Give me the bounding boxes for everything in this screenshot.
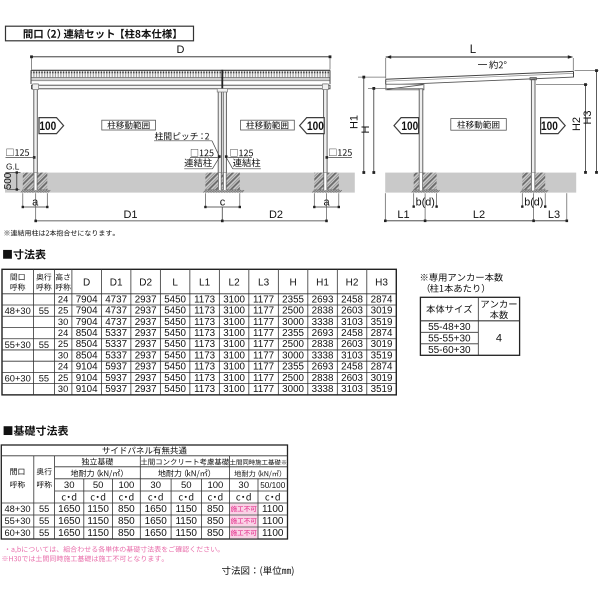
svg-text:2937: 2937 xyxy=(135,306,157,317)
svg-text:H: H xyxy=(360,125,372,133)
svg-text:3019: 3019 xyxy=(371,339,393,350)
svg-text:30: 30 xyxy=(58,350,68,360)
svg-text:55: 55 xyxy=(39,504,49,514)
svg-text:850: 850 xyxy=(207,528,224,539)
svg-text:1173: 1173 xyxy=(194,373,216,384)
svg-text:L2: L2 xyxy=(229,277,241,288)
svg-text:2874: 2874 xyxy=(371,294,393,305)
svg-text:D2: D2 xyxy=(269,209,283,221)
svg-text:5450: 5450 xyxy=(164,373,186,384)
svg-text:2500: 2500 xyxy=(282,339,304,350)
svg-text:1173: 1173 xyxy=(194,328,216,339)
svg-text:D1: D1 xyxy=(110,277,123,288)
svg-text:9104: 9104 xyxy=(76,384,98,395)
svg-text:3103: 3103 xyxy=(341,384,363,395)
svg-text:3103: 3103 xyxy=(341,317,363,328)
svg-text:D: D xyxy=(177,44,185,56)
svg-text:1650: 1650 xyxy=(58,516,81,527)
svg-text:2603: 2603 xyxy=(341,339,363,350)
svg-text:1177: 1177 xyxy=(253,339,274,350)
svg-text:3338: 3338 xyxy=(312,317,334,328)
svg-text:1173: 1173 xyxy=(194,294,216,305)
svg-text:1650: 1650 xyxy=(145,516,168,527)
svg-text:D: D xyxy=(83,277,90,288)
svg-text:4737: 4737 xyxy=(105,306,127,317)
svg-text:2937: 2937 xyxy=(135,328,157,339)
svg-text:4737: 4737 xyxy=(105,294,127,305)
svg-text:1177: 1177 xyxy=(253,350,274,361)
svg-text:3000: 3000 xyxy=(282,384,304,395)
svg-text:3019: 3019 xyxy=(371,306,393,317)
svg-text:2874: 2874 xyxy=(371,328,393,339)
svg-text:3519: 3519 xyxy=(371,317,393,328)
svg-text:25: 25 xyxy=(58,339,68,349)
svg-text:3019: 3019 xyxy=(371,373,393,384)
svg-text:1177: 1177 xyxy=(253,306,274,317)
svg-text:5337: 5337 xyxy=(105,339,127,350)
svg-text:30: 30 xyxy=(58,384,68,394)
svg-text:1100: 1100 xyxy=(262,504,284,515)
svg-text:2355: 2355 xyxy=(282,328,304,339)
svg-text:1177: 1177 xyxy=(253,373,274,384)
svg-text:D1: D1 xyxy=(123,209,137,221)
svg-text:5337: 5337 xyxy=(105,328,127,339)
svg-text:a: a xyxy=(323,196,330,208)
svg-text:55: 55 xyxy=(39,528,49,538)
svg-text:100: 100 xyxy=(401,119,418,133)
svg-text:2874: 2874 xyxy=(371,362,393,373)
svg-text:500: 500 xyxy=(3,172,14,189)
svg-text:24: 24 xyxy=(58,362,68,372)
svg-text:2603: 2603 xyxy=(341,373,363,384)
svg-text:5450: 5450 xyxy=(164,362,186,373)
svg-text:850: 850 xyxy=(118,504,135,515)
svg-text:1100: 1100 xyxy=(262,528,284,539)
svg-text:1150: 1150 xyxy=(175,528,197,539)
svg-text:7904: 7904 xyxy=(76,306,98,317)
svg-text:55-60+30: 55-60+30 xyxy=(428,345,471,356)
svg-text:100: 100 xyxy=(307,119,324,133)
svg-text:2355: 2355 xyxy=(282,294,304,305)
svg-text:100: 100 xyxy=(118,480,134,491)
svg-text:H3: H3 xyxy=(375,277,388,288)
svg-text:25: 25 xyxy=(58,306,68,316)
svg-text:48+30: 48+30 xyxy=(5,306,31,316)
svg-text:850: 850 xyxy=(118,528,135,539)
svg-text:1150: 1150 xyxy=(87,528,109,539)
svg-text:55: 55 xyxy=(39,374,49,384)
svg-text:L3: L3 xyxy=(548,209,560,221)
svg-text:1173: 1173 xyxy=(194,306,216,317)
svg-text:2838: 2838 xyxy=(312,306,334,317)
svg-text:3100: 3100 xyxy=(223,294,245,305)
svg-text:1173: 1173 xyxy=(194,350,216,361)
svg-text:60+30: 60+30 xyxy=(5,374,31,384)
svg-text:1177: 1177 xyxy=(253,328,274,339)
svg-text:1650: 1650 xyxy=(145,528,168,539)
svg-text:2500: 2500 xyxy=(282,306,304,317)
svg-text:50/100: 50/100 xyxy=(260,481,285,490)
svg-text:H: H xyxy=(289,277,296,288)
svg-text:30: 30 xyxy=(58,317,68,327)
svg-text:3103: 3103 xyxy=(341,350,363,361)
svg-text:55: 55 xyxy=(39,516,49,526)
svg-text:9104: 9104 xyxy=(76,362,98,373)
svg-text:3100: 3100 xyxy=(223,362,245,373)
svg-text:3100: 3100 xyxy=(223,317,245,328)
svg-text:24: 24 xyxy=(58,328,68,338)
svg-text:5450: 5450 xyxy=(164,317,186,328)
svg-text:850: 850 xyxy=(207,516,224,527)
svg-text:1650: 1650 xyxy=(58,528,81,539)
svg-text:4: 4 xyxy=(496,333,502,345)
svg-text:50: 50 xyxy=(93,480,104,491)
svg-text:5450: 5450 xyxy=(164,339,186,350)
svg-text:55-55+30: 55-55+30 xyxy=(428,333,471,344)
svg-text:G.L: G.L xyxy=(6,162,20,172)
svg-text:2458: 2458 xyxy=(341,328,363,339)
svg-text:H1: H1 xyxy=(316,277,329,288)
svg-text:8504: 8504 xyxy=(76,350,98,361)
svg-text:3519: 3519 xyxy=(371,384,393,395)
svg-text:2937: 2937 xyxy=(135,350,157,361)
svg-text:100: 100 xyxy=(541,119,558,133)
svg-text:3100: 3100 xyxy=(223,373,245,384)
svg-text:D2: D2 xyxy=(139,277,152,288)
svg-text:50: 50 xyxy=(181,480,192,491)
svg-text:4737: 4737 xyxy=(105,317,127,328)
svg-text:1150: 1150 xyxy=(87,516,109,527)
svg-text:1177: 1177 xyxy=(253,294,274,305)
svg-text:3519: 3519 xyxy=(371,350,393,361)
svg-text:2693: 2693 xyxy=(312,362,334,373)
svg-text:5450: 5450 xyxy=(164,328,186,339)
svg-text:1173: 1173 xyxy=(194,384,216,395)
svg-text:7904: 7904 xyxy=(76,294,98,305)
svg-text:5450: 5450 xyxy=(164,306,186,317)
svg-text:2937: 2937 xyxy=(135,362,157,373)
svg-text:8504: 8504 xyxy=(76,328,98,339)
svg-text:L3: L3 xyxy=(258,277,270,288)
svg-text:7904: 7904 xyxy=(76,317,98,328)
svg-text:1150: 1150 xyxy=(87,504,109,515)
svg-text:100: 100 xyxy=(207,480,223,491)
svg-text:55: 55 xyxy=(39,340,49,350)
svg-text:3100: 3100 xyxy=(223,350,245,361)
svg-text:2937: 2937 xyxy=(135,294,157,305)
svg-text:5937: 5937 xyxy=(105,362,127,373)
svg-text:2355: 2355 xyxy=(282,362,304,373)
svg-text:850: 850 xyxy=(207,504,224,515)
svg-text:2937: 2937 xyxy=(135,373,157,384)
svg-text:9104: 9104 xyxy=(76,373,98,384)
svg-text:48+30: 48+30 xyxy=(4,504,30,514)
svg-text:H1: H1 xyxy=(348,115,360,129)
svg-text:3100: 3100 xyxy=(223,328,245,339)
svg-text:5337: 5337 xyxy=(105,350,127,361)
svg-text:2693: 2693 xyxy=(312,294,334,305)
svg-text:55: 55 xyxy=(39,306,49,316)
svg-text:1177: 1177 xyxy=(253,362,274,373)
svg-text:55-48+30: 55-48+30 xyxy=(428,322,471,333)
svg-text:5450: 5450 xyxy=(164,350,186,361)
svg-text:1150: 1150 xyxy=(175,504,197,515)
svg-text:L2: L2 xyxy=(473,209,485,221)
svg-text:30: 30 xyxy=(150,480,161,491)
svg-text:1173: 1173 xyxy=(194,339,216,350)
svg-text:L: L xyxy=(172,277,178,288)
svg-text:60+30: 60+30 xyxy=(4,528,30,538)
svg-text:1150: 1150 xyxy=(175,516,197,527)
svg-text:2937: 2937 xyxy=(135,339,157,350)
svg-text:2603: 2603 xyxy=(341,306,363,317)
svg-text:2458: 2458 xyxy=(341,294,363,305)
svg-text:3338: 3338 xyxy=(312,350,334,361)
svg-text:1177: 1177 xyxy=(253,384,274,395)
svg-text:3100: 3100 xyxy=(223,306,245,317)
svg-text:1173: 1173 xyxy=(194,362,216,373)
svg-text:L: L xyxy=(470,44,477,56)
svg-text:H3: H3 xyxy=(582,110,594,124)
svg-text:8504: 8504 xyxy=(76,339,98,350)
svg-text:3100: 3100 xyxy=(223,339,245,350)
svg-text:L1: L1 xyxy=(397,209,409,221)
svg-text:5937: 5937 xyxy=(105,384,127,395)
svg-text:5450: 5450 xyxy=(164,294,186,305)
svg-text:55+30: 55+30 xyxy=(4,516,30,526)
svg-text:5937: 5937 xyxy=(105,373,127,384)
svg-text:2693: 2693 xyxy=(312,328,334,339)
svg-text:2937: 2937 xyxy=(135,317,157,328)
svg-text:1650: 1650 xyxy=(58,504,81,515)
svg-text:100: 100 xyxy=(39,119,56,133)
svg-text:2838: 2838 xyxy=(312,339,334,350)
svg-text:55+30: 55+30 xyxy=(5,340,31,350)
svg-text:3100: 3100 xyxy=(223,384,245,395)
svg-text:1650: 1650 xyxy=(145,504,168,515)
svg-text:30: 30 xyxy=(64,480,75,491)
svg-text:3000: 3000 xyxy=(282,317,304,328)
svg-text:1177: 1177 xyxy=(253,317,274,328)
svg-text:c: c xyxy=(220,196,226,208)
svg-text:850: 850 xyxy=(118,516,135,527)
svg-text:30: 30 xyxy=(238,480,249,491)
svg-text:H2: H2 xyxy=(346,277,359,288)
svg-text:2937: 2937 xyxy=(135,384,157,395)
svg-text:1173: 1173 xyxy=(194,317,216,328)
svg-text:2458: 2458 xyxy=(341,362,363,373)
svg-text:5450: 5450 xyxy=(164,384,186,395)
svg-text:1100: 1100 xyxy=(262,516,284,527)
svg-text:2838: 2838 xyxy=(312,373,334,384)
svg-text:3000: 3000 xyxy=(282,350,304,361)
svg-text:L1: L1 xyxy=(199,277,211,288)
svg-text:2500: 2500 xyxy=(282,373,304,384)
svg-text:3338: 3338 xyxy=(312,384,334,395)
svg-text:24: 24 xyxy=(58,294,68,304)
svg-text:25: 25 xyxy=(58,373,68,383)
